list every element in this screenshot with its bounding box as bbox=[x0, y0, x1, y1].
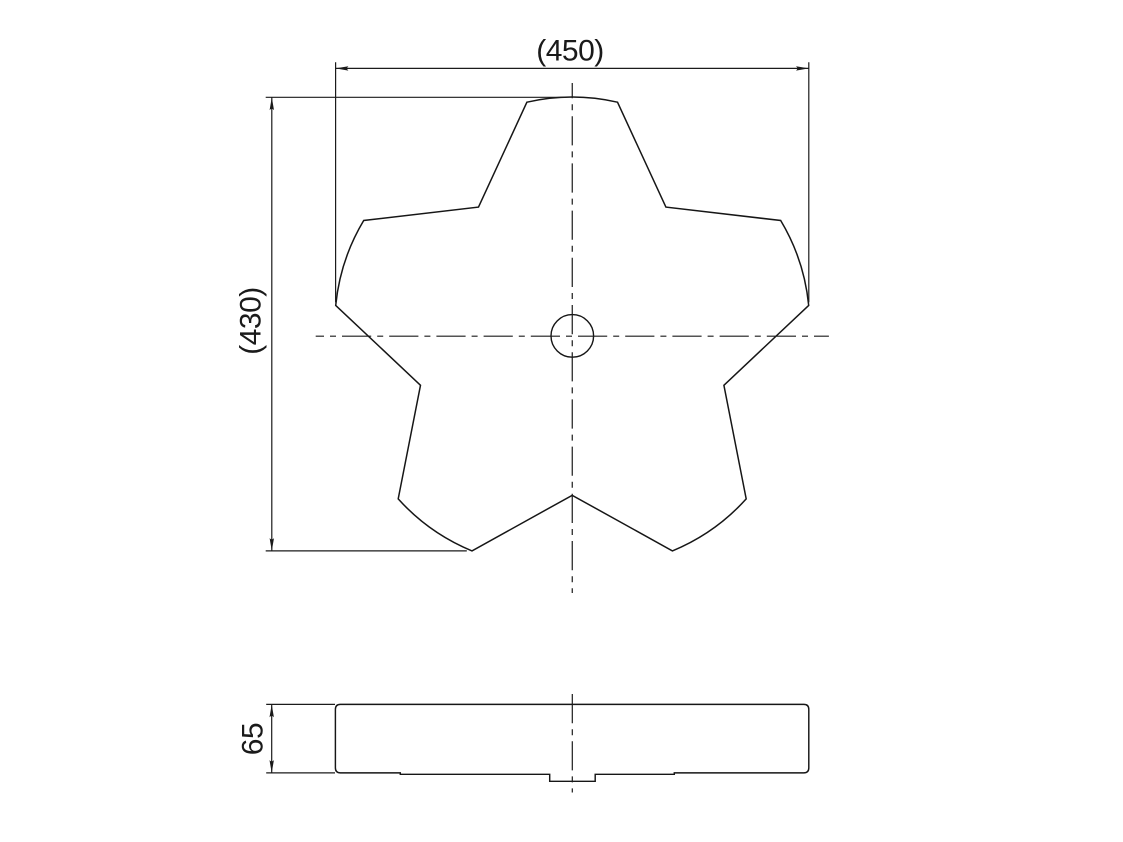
svg-text:65: 65 bbox=[237, 723, 270, 755]
svg-text:(430): (430) bbox=[235, 287, 268, 355]
svg-text:(450): (450) bbox=[536, 34, 604, 67]
